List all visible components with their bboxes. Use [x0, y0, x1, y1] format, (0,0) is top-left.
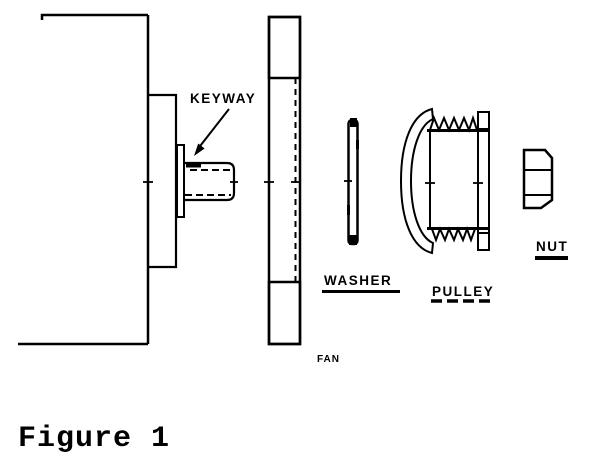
motor-body [18, 15, 176, 344]
pulley-serrations-bottom [432, 229, 475, 240]
fan-label: FAN [317, 354, 340, 365]
pulley-label: PULLEY [432, 284, 494, 299]
nut-underline [535, 256, 568, 260]
pulley-right-flange-section-bottom [478, 233, 489, 250]
washer-callout: WASHER [322, 273, 400, 293]
figure-page: KEYWAY FAN WASHER [0, 0, 608, 462]
nut-section-bottom [524, 195, 552, 208]
nut-callout: NUT [535, 239, 568, 260]
motor-shaft [177, 145, 238, 217]
washer-section-bottom [349, 235, 357, 245]
keyway-arrow-line [197, 109, 229, 150]
shaft-slinger-flange [177, 145, 184, 217]
nut-label: NUT [536, 239, 568, 254]
pulley-callout: PULLEY [431, 284, 494, 301]
washer-outline [349, 120, 358, 244]
motor-top-edge [42, 15, 148, 20]
nut-section-top [524, 150, 552, 170]
figure-caption: Figure 1 [18, 422, 170, 456]
nut-part: NUT [524, 150, 568, 260]
fan-hub-section-bottom [269, 282, 300, 344]
nut-outline [524, 150, 552, 208]
keyway-arrowhead-icon [194, 144, 205, 157]
pulley-serrations-top [430, 118, 477, 130]
washer-underline [322, 290, 400, 293]
pulley-right-flange-section-top [478, 112, 489, 129]
keyway-label: KEYWAY [190, 91, 256, 106]
washer-label: WASHER [324, 273, 392, 288]
exploded-assembly-diagram: KEYWAY FAN WASHER [0, 0, 608, 462]
washer-section-top [350, 118, 357, 127]
washer-part: WASHER [322, 118, 400, 293]
keyway-callout: KEYWAY [190, 91, 256, 156]
pulley-part: PULLEY [401, 109, 494, 301]
motor-end-bell [148, 95, 176, 267]
fan-hub-section-top [269, 17, 300, 78]
fan-part: FAN [264, 17, 340, 365]
